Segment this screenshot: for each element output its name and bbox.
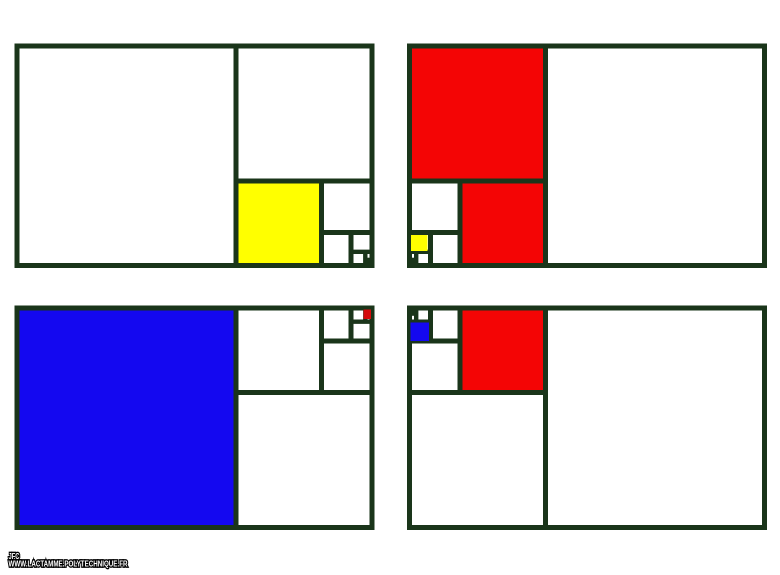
svg-text:WWW.LACTAMME.POLYTECHNIQUE.FR: WWW.LACTAMME.POLYTECHNIQUE.FR [9, 560, 128, 569]
